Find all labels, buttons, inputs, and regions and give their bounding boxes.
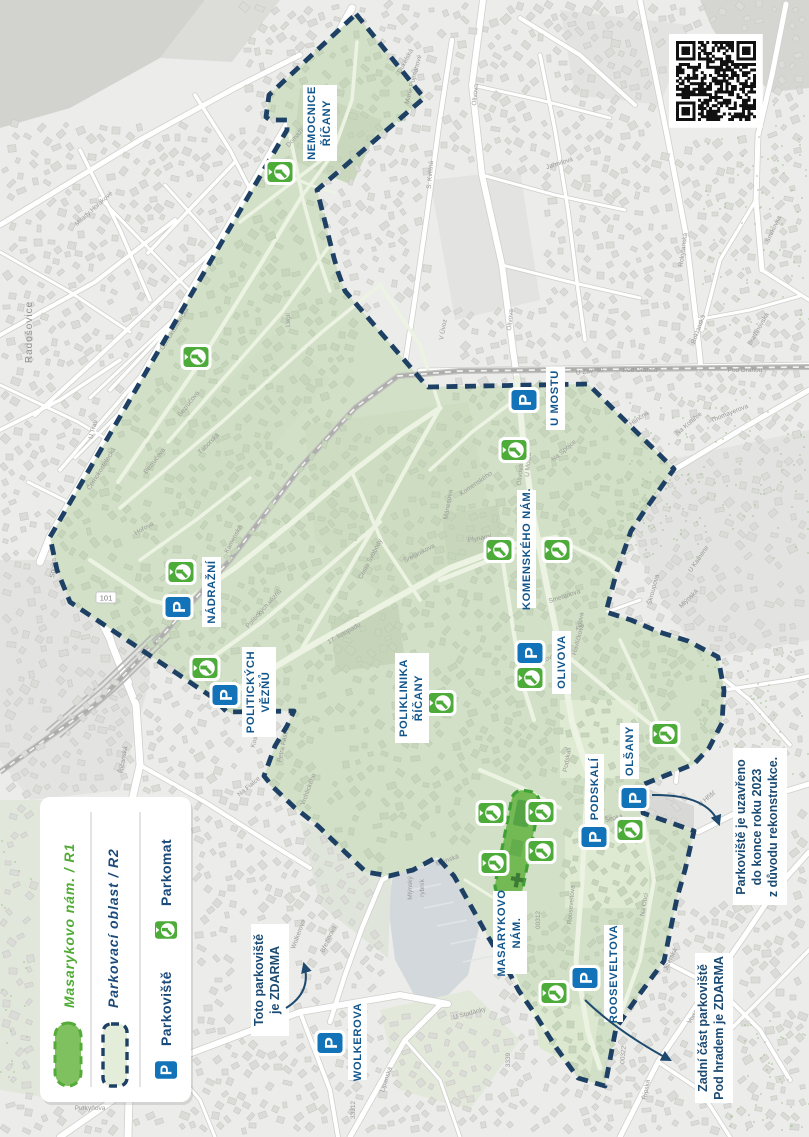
- svg-text:Parkoviště: Parkoviště: [158, 971, 174, 1046]
- svg-text:Masarykovo nám. / R1: Masarykovo nám. / R1: [61, 843, 77, 1008]
- svg-text:ROOSEVELTOVA: ROOSEVELTOVA: [608, 925, 620, 1024]
- svg-text:rybník: rybník: [419, 878, 426, 896]
- svg-text:MASARYKOVO: MASARYKOVO: [496, 889, 508, 976]
- svg-text:Pod Drahou: Pod Drahou: [728, 367, 763, 374]
- svg-text:Pod hradem je ZDARMA: Pod hradem je ZDARMA: [712, 956, 726, 1100]
- svg-text:Legií: Legií: [285, 313, 292, 327]
- svg-text:33312: 33312: [350, 1101, 357, 1119]
- svg-text:je ZDARMA: je ZDARMA: [268, 946, 282, 1015]
- svg-text:Mlýnský: Mlýnský: [407, 876, 414, 900]
- svg-text:NÁDRAŽNÍ: NÁDRAŽNÍ: [205, 560, 218, 624]
- svg-text:Parkoviště je uzavřeno: Parkoviště je uzavřeno: [734, 759, 748, 895]
- svg-text:NÁM.: NÁM.: [510, 918, 523, 949]
- svg-text:Radošovice: Radošovice: [24, 301, 35, 363]
- svg-text:Pod Drahou: Pod Drahou: [623, 367, 658, 374]
- svg-text:POLITICKÝCH: POLITICKÝCH: [244, 651, 257, 733]
- svg-text:Toto parkoviště: Toto parkoviště: [252, 934, 266, 1026]
- svg-text:z důvodu rekonstrukce.: z důvodu rekonstrukce.: [766, 757, 780, 897]
- svg-text:OLIVOVA: OLIVOVA: [556, 635, 568, 689]
- svg-text:VĚZŇŮ: VĚZŇŮ: [258, 672, 272, 713]
- svg-text:ŘÍČANY: ŘÍČANY: [412, 675, 425, 722]
- svg-text:00312: 00312: [535, 911, 542, 929]
- svg-text:Parkovací oblast / R2: Parkovací oblast / R2: [105, 848, 121, 1008]
- svg-text:Zadní část parkoviště: Zadní část parkoviště: [696, 964, 710, 1092]
- svg-text:WOLKEROVA: WOLKEROVA: [352, 1003, 364, 1082]
- svg-text:POLIKLINIKA: POLIKLINIKA: [398, 659, 410, 737]
- svg-text:101: 101: [100, 594, 113, 603]
- svg-text:ŘÍČANY: ŘÍČANY: [320, 100, 333, 147]
- svg-text:3339: 3339: [505, 1052, 512, 1067]
- svg-text:OLŠANY: OLŠANY: [623, 726, 636, 776]
- svg-text:NEMOCNICE: NEMOCNICE: [306, 86, 318, 160]
- svg-text:PODSKALÍ: PODSKALÍ: [588, 757, 601, 820]
- svg-text:KOMENSKÉHO NÁM.: KOMENSKÉHO NÁM.: [520, 488, 533, 610]
- svg-text:do konce roku 2023: do konce roku 2023: [750, 769, 764, 886]
- svg-text:Purkyňova: Purkyňova: [75, 1105, 106, 1112]
- svg-text:Parkomat: Parkomat: [158, 839, 174, 906]
- svg-text:U MOSTU: U MOSTU: [549, 370, 561, 426]
